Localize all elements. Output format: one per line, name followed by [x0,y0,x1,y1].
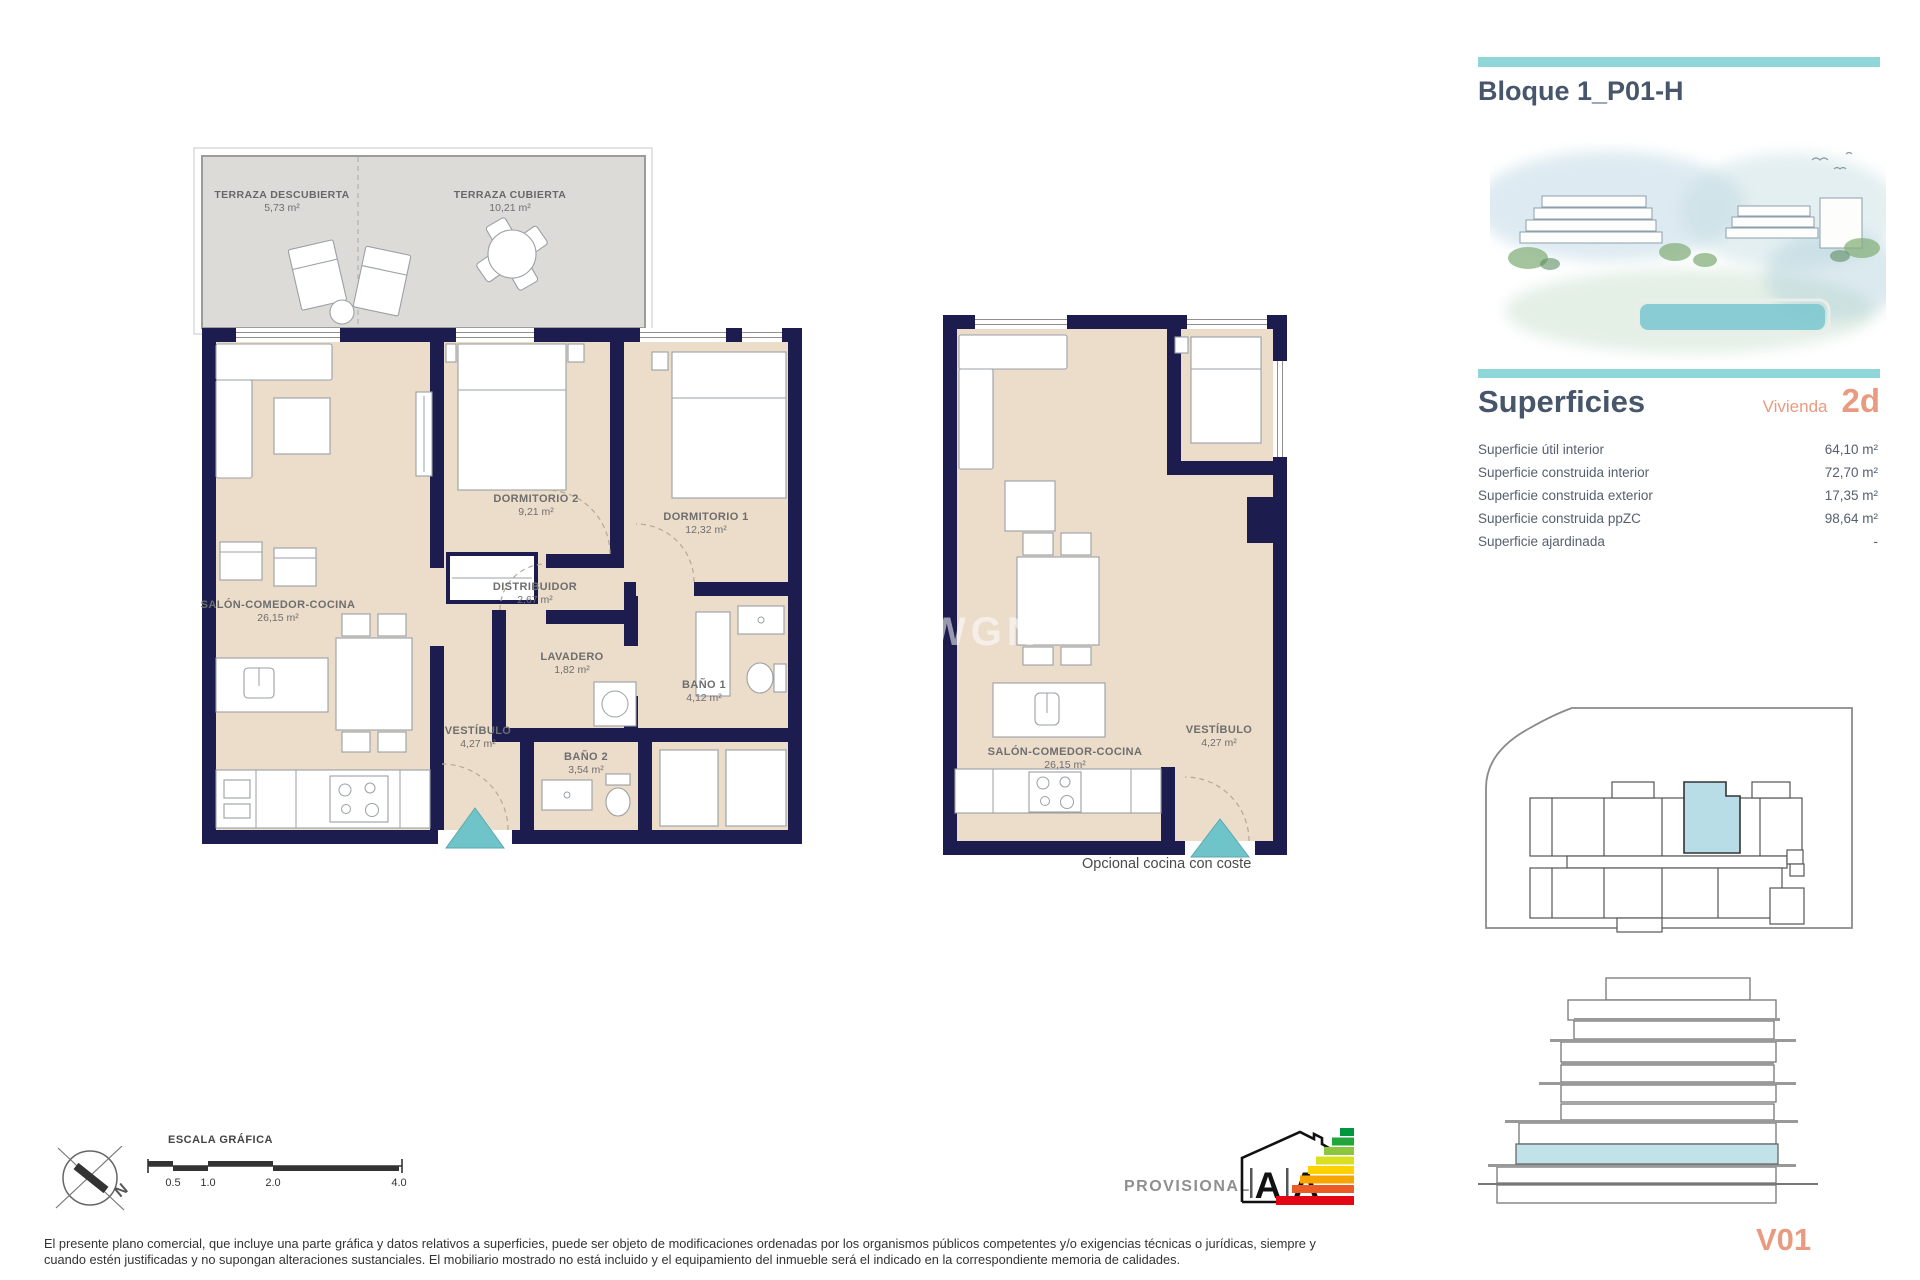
room-label-dormitorio-1: DORMITORIO 1 [663,511,748,523]
scale-bar: 0.5 1.0 2.0 4.0 [140,1152,430,1196]
table-row: Superficie útil interior64,10 m² [1478,442,1878,457]
superficies-table: Superficie útil interior64,10 m² Superfi… [1478,442,1878,557]
floor-plan-main: TERRAZA DESCUBIERTA 5,73 m² TERRAZA CUBI… [190,146,830,872]
pool [1640,304,1825,330]
disclaimer-line-1: El presente plano comercial, que incluye… [44,1236,1444,1252]
disclaimer-line-2: cuando estén justificadas y no supongan … [44,1252,1444,1268]
plan-version: V01 [1756,1222,1811,1258]
windows [236,328,782,342]
svg-text:2.0: 2.0 [265,1177,280,1189]
ground-line [1478,1183,1818,1185]
svg-text:12,32 m²: 12,32 m² [685,524,727,536]
svg-text:9,21 m²: 9,21 m² [518,506,554,518]
svg-text:2,67 m²: 2,67 m² [517,594,553,606]
room-label-bano-2: BAÑO 2 [564,750,608,763]
energy-rating-icon: A A [1236,1124,1360,1220]
room-label-dormitorio-2: DORMITORIO 2 [493,493,578,505]
svg-text:26,15 m²: 26,15 m² [1044,759,1086,771]
room-label-terraza-cubierta: TERRAZA CUBIERTA [454,189,567,201]
terrace-area: TERRAZA DESCUBIERTA 5,73 m² TERRAZA CUBI… [194,148,652,334]
room-label-bano-1: BAÑO 1 [682,678,726,691]
svg-text:26,15 m²: 26,15 m² [257,612,299,624]
svg-text:4,27 m²: 4,27 m² [1201,737,1237,749]
table-row: Superficie construida interior72,70 m² [1478,465,1878,480]
room-label-salon: SALÓN-COMEDOR-COCINA [988,745,1143,758]
room-label-lavadero: LAVADERO [540,651,603,663]
site-key-plan [1472,688,1902,948]
highlighted-floor [1516,1144,1778,1164]
table-row: Superficie construida exterior17,35 m² [1478,488,1878,503]
svg-text:4,12 m²: 4,12 m² [686,692,722,704]
room-label-salon: SALÓN-COMEDOR-COCINA [201,598,356,611]
vivienda-code: 2d [1841,382,1880,420]
building-render-image [1490,136,1886,360]
superficies-heading: Superficies [1478,384,1645,420]
svg-text:10,21 m²: 10,21 m² [489,202,531,214]
north-letter: N [112,1181,132,1201]
svg-text:3,54 m²: 3,54 m² [568,764,604,776]
svg-text:5,73 m²: 5,73 m² [264,202,300,214]
room-label-vestibulo: VESTÍBULO [1186,723,1253,736]
superficies-header: Superficies Vivienda 2d [1478,382,1880,420]
vivienda-label: Vivienda [1763,397,1828,417]
disclaimer: El presente plano comercial, que incluye… [44,1236,1444,1267]
page-title: Bloque 1_P01-H [1478,76,1684,107]
svg-text:1,82 m²: 1,82 m² [554,664,590,676]
svg-text:4,27 m²: 4,27 m² [460,738,496,750]
svg-text:4.0: 4.0 [391,1177,406,1189]
scale-label: ESCALA GRÁFICA [168,1134,273,1146]
sidebar-top-bar [1478,57,1880,67]
provisional-label: PROVISIONAL [1124,1178,1251,1196]
watermark: WGN [928,610,1041,655]
room-label-vestibulo: VESTÍBULO [445,724,512,737]
optional-kitchen-caption: Opcional cocina con coste [1082,856,1251,872]
svg-text:1.0: 1.0 [200,1177,215,1189]
table-row: Superficie construida ppZC98,64 m² [1478,511,1878,526]
table-row: Superficie ajardinada- [1478,534,1878,549]
floor-plan-optional: SALÓN-COMEDOR-COCINA 26,15 m² VESTÍBULO … [935,305,1295,870]
room-label-terraza-descubierta: TERRAZA DESCUBIERTA [214,189,349,201]
svg-text:0.5: 0.5 [165,1177,180,1189]
room-label-distribuidor: DISTRIBUIDOR [493,581,577,593]
elevation-key [1478,963,1902,1209]
superficies-bar [1478,369,1880,378]
